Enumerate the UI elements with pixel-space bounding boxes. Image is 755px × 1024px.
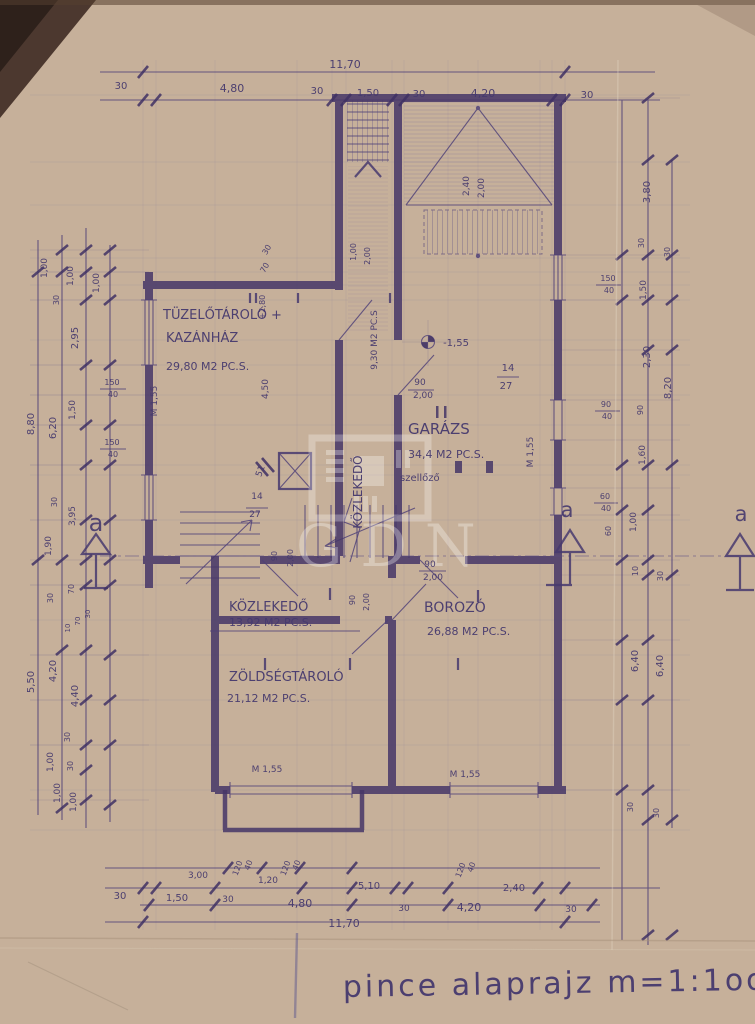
dim-label: 30 — [637, 238, 646, 248]
dim-label: 1,50 — [166, 893, 188, 904]
room-area-zoldsegtarolo: 21,12 M2 PC.S. — [227, 692, 310, 705]
dim-label: 4,80 — [288, 897, 313, 910]
dim-label: 6,20 — [48, 417, 59, 439]
dim-label: 1,50 — [639, 280, 649, 300]
room-label-zoldsegtarolo: ZÖLDSÉGTÁROLÓ — [229, 668, 344, 685]
dim-label: 11,70 — [328, 917, 360, 930]
dim-label: 30 — [84, 610, 92, 619]
dim-label: 30 — [222, 895, 234, 905]
dim-label: 90 — [348, 595, 357, 605]
dim-label: 40 — [108, 450, 118, 459]
dim-label: 27 — [500, 381, 513, 392]
dim-label: 6,40 — [630, 650, 641, 672]
dim-label: 2,30 — [642, 346, 653, 368]
dim-label: 11,70 — [329, 58, 361, 71]
room-label-borozo: BOROZÓ — [424, 598, 486, 616]
floorplan-drawing: GDN 11,70304,80301,50304,20301,001,001,0… — [0, 0, 755, 1024]
dim-label: 70 — [258, 261, 271, 274]
section-marker-letter: a — [735, 502, 748, 526]
dim-label: M 1,55 — [150, 386, 160, 417]
dim-label: 90 — [636, 405, 645, 415]
dim-label: 40 — [604, 286, 614, 295]
dim-label: 40 — [602, 412, 612, 421]
dim-label: 1,00 — [69, 792, 79, 812]
dim-label: 4,50 — [261, 379, 271, 399]
dim-label: 1,50 — [68, 400, 78, 420]
dim-label: 40 — [108, 390, 118, 399]
dim-label: 1,00 — [66, 266, 76, 286]
dim-label: 90 — [414, 378, 426, 388]
dim-label: 10 — [631, 566, 640, 576]
dim-label: 30 — [626, 802, 635, 812]
dim-label: 150 — [104, 378, 119, 387]
dim-label: M 1,55 — [450, 770, 481, 780]
dim-label: 1,00 — [629, 512, 639, 532]
dim-label: 60 — [604, 526, 613, 536]
dim-label: +2,80 — [258, 295, 267, 320]
dim-label: 1,90 — [44, 536, 54, 556]
dim-label: 30 — [46, 593, 55, 603]
dim-label: 60 — [600, 492, 610, 501]
dim-label: 4,80 — [220, 82, 245, 95]
blueprint-photo: GDN 11,70304,80301,50304,20301,001,001,0… — [0, 0, 755, 1024]
dim-label: 2,00 — [413, 391, 433, 401]
dim-label: 30 — [52, 295, 61, 305]
dim-label: 5,10 — [358, 881, 380, 892]
dim-label: 4,40 — [70, 685, 81, 707]
dim-label: 40 — [601, 504, 611, 513]
dim-label: 150 — [600, 274, 615, 283]
room-label-kozlekedo-upper: KÖZLEKEDŐ — [349, 455, 365, 528]
dim-label: 2,95 — [70, 327, 81, 349]
dim-label: 2,40 — [503, 883, 525, 894]
room-area-kozlekedo-lower: 13,92 M2 PC.S. — [229, 616, 312, 629]
room-label-garazs: GARÁZS — [408, 419, 470, 438]
dim-label: M 1,55 — [526, 437, 536, 468]
dim-label: 90 — [601, 400, 611, 409]
dim-label: 30 — [581, 90, 594, 101]
dim-label: 8,80 — [26, 413, 37, 435]
dim-label: 3,95 — [68, 506, 78, 526]
dim-label: 30 — [115, 81, 128, 92]
dim-label: 30 — [114, 891, 127, 902]
dim-label: 30 — [652, 808, 661, 818]
dim-label: 5,50 — [26, 671, 37, 693]
stair-treads-entrance — [180, 512, 260, 578]
dim-label: 30 — [663, 247, 672, 257]
room-area-borozo: 26,88 M2 PC.S. — [427, 625, 510, 638]
dim-label: 14 — [251, 492, 263, 502]
room-area-garazs: 34,4 M2 PC.S. — [408, 448, 484, 461]
watermark-text: GDN — [296, 512, 494, 580]
dim-label: 4,20 — [457, 901, 482, 914]
section-marker-letter: a — [89, 509, 104, 537]
dim-label: 2,00 — [477, 178, 487, 198]
dim-label: 1,00 — [349, 243, 358, 261]
dim-label: 10 — [64, 624, 72, 633]
dim-label: 2,40 — [462, 176, 472, 196]
light-well-walls — [223, 790, 364, 830]
vent-label: szellőző — [400, 472, 440, 484]
dim-label: 51 — [254, 464, 267, 478]
plan-caption: pince alaprajz m=1:1oo — [343, 963, 755, 1005]
dim-label: 3,80 — [642, 181, 653, 203]
dim-label: 1,50 — [357, 88, 379, 99]
dim-label: 4,20 — [471, 87, 496, 100]
dim-label: 30 — [413, 89, 426, 100]
dim-label: 30 — [260, 243, 273, 256]
dim-label: 40 — [291, 859, 303, 872]
dim-label: 27 — [249, 510, 260, 520]
room-area-kozlekedo-upper: 9,30 M2 PC.S — [370, 310, 380, 370]
dim-label: 70 — [67, 584, 76, 594]
dim-label: 6,40 — [655, 655, 666, 677]
room-label-kozlekedo-lower: KÖZLEKEDŐ — [229, 598, 308, 615]
dim-label: 1,00 — [40, 258, 50, 278]
dim-label: 30 — [656, 571, 665, 581]
dim-label: 2,00 — [362, 593, 371, 611]
dim-label: 30 — [63, 732, 72, 742]
room-area-kazanhaz: 29,80 M2 PC.S. — [166, 360, 249, 373]
dim-label: 1,60 — [638, 445, 648, 465]
room-label-kazanhaz: KAZÁNHÁZ — [166, 330, 238, 346]
dim-label: 40 — [243, 859, 255, 872]
dim-label: 2,00 — [363, 247, 372, 265]
dim-label: 1,00 — [92, 273, 102, 293]
dim-label: 30 — [398, 904, 410, 914]
dim-label: 90 — [424, 560, 436, 570]
dim-label: 2,00 — [423, 573, 443, 583]
section-marker-letter: a — [561, 498, 574, 522]
dim-label: 8,20 — [663, 377, 674, 399]
stair-hatch-upper — [347, 100, 554, 331]
dim-label: 1,00 — [46, 752, 56, 772]
dim-label: 70 — [74, 617, 82, 626]
dim-label: M 1,55 — [252, 765, 283, 775]
dim-label: 1,00 — [53, 783, 63, 803]
dim-label: 30 — [66, 761, 75, 771]
dim-label: 4,20 — [48, 660, 59, 682]
dim-label: 30 — [565, 905, 577, 915]
level-mark-value: -1,55 — [443, 338, 469, 349]
dim-label: 30 — [311, 86, 324, 97]
dim-label: 40 — [466, 861, 478, 874]
dim-label: 1,20 — [258, 876, 278, 886]
dim-label: 30 — [50, 497, 59, 507]
dim-label: 2,00 — [286, 549, 295, 567]
vent-symbols — [436, 406, 493, 473]
dim-label: 90 — [270, 551, 279, 561]
dim-label: 150 — [104, 438, 119, 447]
dim-label: 3,00 — [188, 871, 208, 881]
dim-label: 14 — [502, 363, 515, 374]
